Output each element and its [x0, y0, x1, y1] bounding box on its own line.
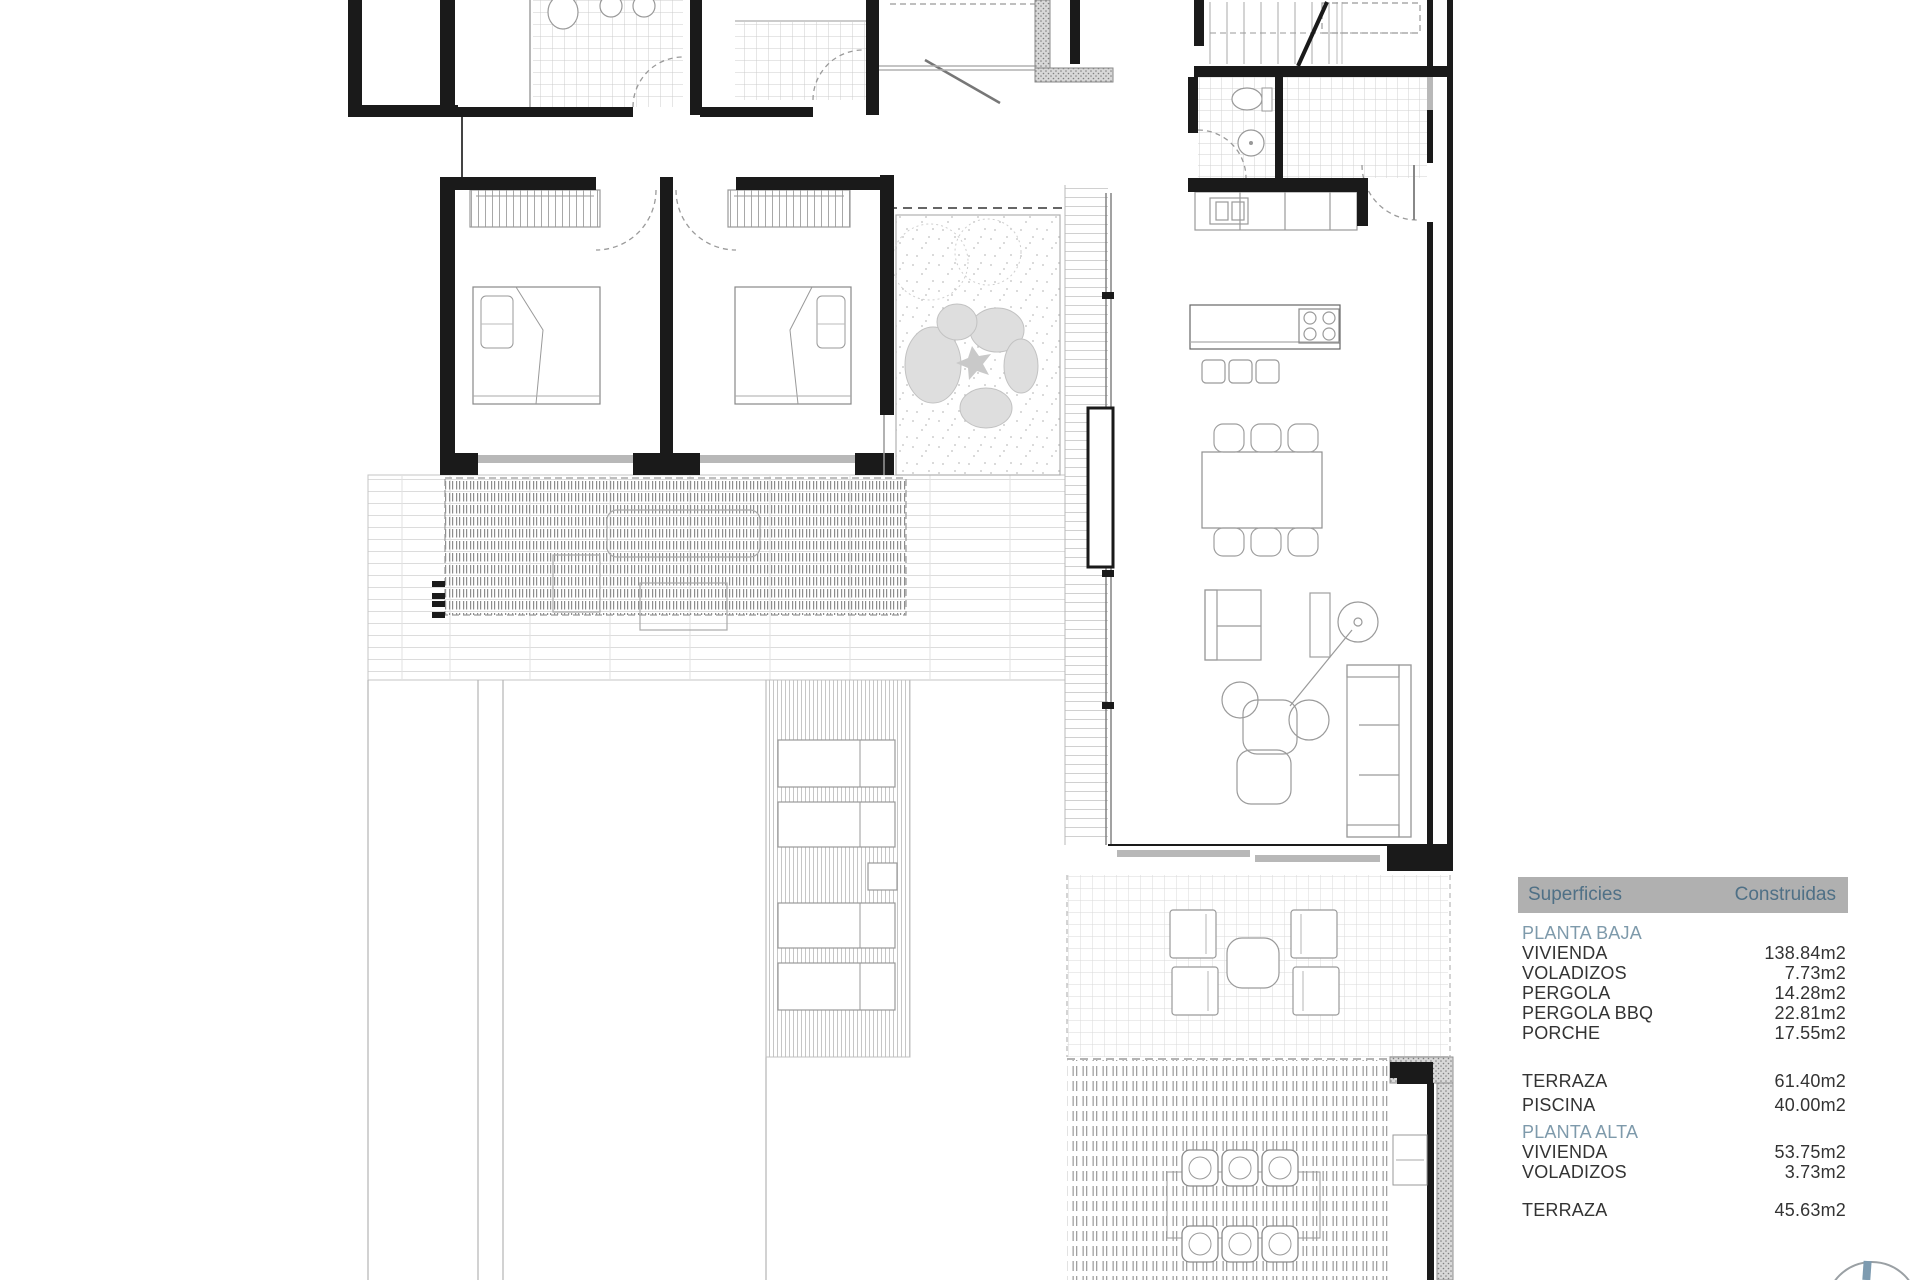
legend-row: TERRAZA45.63m2 — [1518, 1200, 1848, 1220]
bar-stools — [1202, 360, 1279, 383]
sideboard — [1310, 593, 1330, 657]
bed-icon — [735, 287, 851, 404]
legend-row: PERGOLA14.28m2 — [1518, 983, 1848, 1003]
shower-room — [735, 21, 878, 100]
dining-table-icon — [1202, 452, 1322, 528]
bedroom-2 — [728, 190, 851, 404]
dining-chair-icon — [1214, 424, 1318, 556]
kitchen-island — [1190, 305, 1340, 349]
legend-row: VIVIENDA53.75m2 — [1518, 1142, 1848, 1162]
entry-threshold — [878, 66, 1035, 70]
utility-room — [1283, 77, 1427, 178]
legend-row: PORCHE17.55m2 — [1518, 1023, 1848, 1043]
bedroom-1 — [470, 190, 600, 404]
pergola-deck — [432, 478, 906, 630]
side-table-icon — [1222, 682, 1258, 718]
surface-areas-legend: Superficies Construidas PLANTA BAJA VIVI… — [1518, 877, 1848, 1220]
wc — [1198, 77, 1275, 178]
living-area — [1205, 590, 1411, 837]
stairs-icon — [1210, 2, 1420, 66]
bed-icon — [473, 287, 600, 404]
legend-row: PISCINA40.00m2 — [1518, 1095, 1848, 1115]
sink-icon — [633, 0, 655, 17]
compass-logo-icon — [1826, 1261, 1918, 1280]
dining-area — [1202, 424, 1330, 657]
legend-rows: PLANTA BAJA VIVIENDA138.84m2 VOLADIZOS7.… — [1518, 923, 1848, 1220]
chimney-pier — [1088, 408, 1113, 567]
legend-header: Superficies Construidas — [1518, 877, 1848, 913]
sofa-icon — [1205, 590, 1261, 660]
legend-row-planta-baja: PLANTA BAJA — [1518, 923, 1848, 943]
bbq-pergola-deck — [1067, 1057, 1453, 1280]
sink-icon — [600, 0, 622, 17]
sofa-icon — [1347, 665, 1411, 837]
legend-row: VIVIENDA138.84m2 — [1518, 943, 1848, 963]
courtyard — [888, 208, 1065, 475]
sunbed-strip — [766, 680, 910, 1057]
legend-row: TERRAZA61.40m2 — [1518, 1071, 1848, 1091]
arc-lamp-icon — [1290, 602, 1378, 706]
toilet-icon — [548, 0, 578, 29]
legend-row: VOLADIZOS3.73m2 — [1518, 1162, 1848, 1182]
legend-row-planta-alta: PLANTA ALTA — [1518, 1122, 1848, 1142]
round-table-icon — [1227, 938, 1279, 988]
legend-row: PERGOLA BBQ22.81m2 — [1518, 1003, 1848, 1023]
side-path-lines — [368, 680, 766, 1280]
kitchen — [1190, 192, 1357, 383]
legend-row: VOLADIZOS7.73m2 — [1518, 963, 1848, 983]
screenshot-root: Superficies Construidas PLANTA BAJA VIVI… — [0, 0, 1920, 1280]
lounge-chair-icon — [1237, 700, 1329, 804]
bathroom-1 — [530, 0, 683, 107]
toilet-icon — [1232, 88, 1262, 110]
legend-header-left: Superficies — [1528, 884, 1622, 906]
legend-header-right: Construidas — [1735, 884, 1836, 906]
